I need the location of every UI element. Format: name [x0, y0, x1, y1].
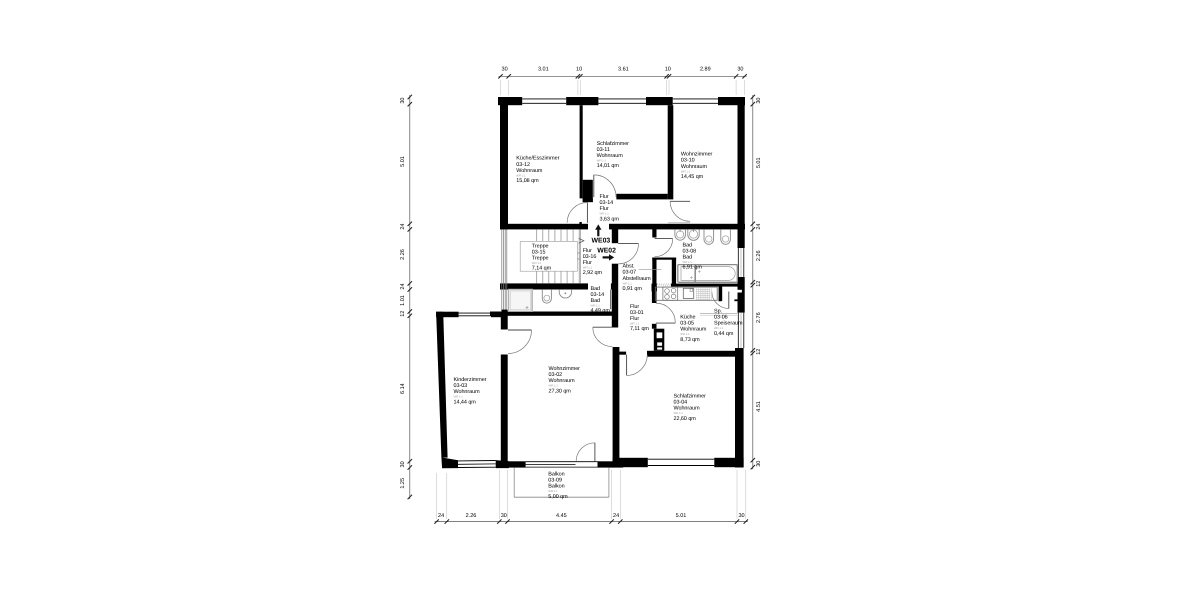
- svg-text:WFl 1:1: WFl 1:1: [549, 385, 559, 388]
- svg-text:30: 30: [756, 98, 762, 104]
- svg-text:24: 24: [613, 513, 619, 519]
- svg-text:4,49 qm: 4,49 qm: [591, 308, 611, 314]
- svg-text:5.01: 5.01: [400, 156, 406, 167]
- svg-text:Wohnzimmer: Wohnzimmer: [681, 152, 713, 158]
- svg-text:12: 12: [400, 311, 406, 317]
- svg-text:Bad: Bad: [683, 242, 693, 248]
- svg-text:Küche: Küche: [680, 315, 695, 321]
- svg-text:3.61: 3.61: [618, 66, 629, 72]
- svg-text:03-10: 03-10: [681, 158, 695, 164]
- svg-text:03-08: 03-08: [683, 249, 697, 255]
- svg-text:Wohnraum: Wohnraum: [681, 164, 708, 170]
- svg-text:WFl 1:1: WFl 1:1: [674, 412, 684, 415]
- svg-text:Schlafzimmer: Schlafzimmer: [597, 141, 630, 147]
- svg-text:Flur: Flur: [583, 260, 592, 266]
- svg-text:03-04: 03-04: [674, 400, 688, 406]
- svg-text:Wohnraum: Wohnraum: [674, 406, 701, 412]
- svg-text:6,91 qm: 6,91 qm: [683, 265, 703, 271]
- svg-text:2.26: 2.26: [756, 250, 762, 261]
- svg-text:WFl 1:1: WFl 1:1: [548, 490, 558, 493]
- svg-text:03-11: 03-11: [597, 147, 610, 153]
- svg-text:5.01: 5.01: [676, 513, 687, 519]
- svg-text:WFl 1:1: WFl 1:1: [597, 160, 607, 163]
- svg-text:WE03: WE03: [592, 237, 611, 244]
- svg-text:14,45 qm: 14,45 qm: [681, 174, 704, 180]
- svg-text:Balkon: Balkon: [548, 472, 564, 478]
- svg-text:10: 10: [665, 66, 671, 72]
- svg-text:30: 30: [502, 66, 508, 72]
- svg-text:30: 30: [738, 513, 744, 519]
- svg-text:Wohnzimmer: Wohnzimmer: [549, 366, 581, 372]
- svg-text:7,14 qm: 7,14 qm: [532, 266, 552, 272]
- svg-text:30: 30: [400, 461, 406, 467]
- svg-text:12: 12: [756, 349, 762, 355]
- svg-text:Kinderzimmer: Kinderzimmer: [454, 377, 487, 383]
- svg-text:22,60 qm: 22,60 qm: [674, 416, 697, 422]
- svg-text:Wohnraum: Wohnraum: [516, 168, 543, 174]
- svg-text:03-15: 03-15: [532, 249, 546, 255]
- svg-text:03-07: 03-07: [623, 270, 637, 276]
- svg-text:03-06: 03-06: [714, 315, 728, 321]
- svg-text:03-03: 03-03: [454, 383, 468, 389]
- svg-text:WE02: WE02: [597, 248, 616, 255]
- svg-text:0,44 qm: 0,44 qm: [714, 331, 734, 337]
- svg-text:24: 24: [400, 224, 406, 230]
- svg-text:WFl 1:1: WFl 1:1: [680, 333, 690, 336]
- svg-text:Treppe: Treppe: [532, 256, 549, 262]
- svg-text:1.25: 1.25: [400, 478, 406, 489]
- svg-text:Wohnraum: Wohnraum: [680, 327, 707, 333]
- svg-text:2.26: 2.26: [466, 513, 477, 519]
- svg-text:WFl 1:1: WFl 1:1: [583, 267, 593, 270]
- svg-text:Abstellraum: Abstellraum: [623, 276, 652, 282]
- svg-text:30: 30: [756, 461, 762, 467]
- svg-text:WFl 1:1: WFl 1:1: [630, 323, 640, 326]
- svg-text:12: 12: [756, 281, 762, 287]
- svg-text:2,92 qm: 2,92 qm: [583, 270, 603, 276]
- svg-text:03-05: 03-05: [680, 321, 694, 327]
- svg-text:Flur: Flur: [630, 304, 639, 310]
- svg-text:WFl 1:1: WFl 1:1: [600, 213, 610, 216]
- svg-text:WFl 1:1: WFl 1:1: [683, 261, 693, 264]
- svg-text:6.14: 6.14: [400, 383, 406, 394]
- svg-text:5,00 qm: 5,00 qm: [548, 494, 568, 500]
- svg-text:3.01: 3.01: [538, 66, 549, 72]
- svg-text:2.89: 2.89: [700, 66, 711, 72]
- svg-text:WFl 1:1: WFl 1:1: [714, 327, 724, 330]
- svg-text:2.26: 2.26: [400, 249, 406, 260]
- svg-text:4.51: 4.51: [756, 401, 762, 412]
- svg-text:Abst.: Abst.: [623, 264, 636, 270]
- svg-text:WFl 1:1: WFl 1:1: [532, 262, 542, 265]
- svg-text:WFl 1:1: WFl 1:1: [623, 282, 633, 285]
- svg-text:5.01: 5.01: [756, 157, 762, 168]
- svg-text:24: 24: [756, 224, 762, 230]
- svg-text:Bad: Bad: [591, 286, 601, 292]
- svg-text:Schlafzimmer: Schlafzimmer: [674, 394, 707, 400]
- svg-text:WFl 1:1: WFl 1:1: [454, 396, 464, 399]
- svg-text:14,44 qm: 14,44 qm: [454, 399, 477, 405]
- svg-text:4.45: 4.45: [556, 513, 567, 519]
- svg-text:03-14: 03-14: [600, 200, 614, 206]
- svg-text:WFl 1:1: WFl 1:1: [516, 174, 526, 177]
- svg-text:Bad: Bad: [591, 298, 601, 304]
- svg-text:Speiseraum: Speiseraum: [714, 321, 743, 327]
- svg-text:WFl 1:1: WFl 1:1: [681, 170, 691, 173]
- svg-text:24: 24: [400, 283, 406, 289]
- svg-text:24: 24: [438, 513, 444, 519]
- svg-text:Treppe: Treppe: [532, 243, 549, 249]
- svg-text:Wohnraum: Wohnraum: [597, 153, 624, 159]
- svg-text:10: 10: [576, 66, 582, 72]
- svg-text:Küche/Esszimmer: Küche/Esszimmer: [516, 156, 559, 162]
- svg-text:Flur: Flur: [600, 194, 609, 200]
- svg-text:03-02: 03-02: [549, 372, 563, 378]
- svg-text:30: 30: [501, 513, 507, 519]
- svg-text:30: 30: [737, 66, 743, 72]
- svg-text:3,63 qm: 3,63 qm: [600, 216, 620, 222]
- svg-text:03-14: 03-14: [591, 292, 605, 298]
- svg-text:0,91 qm: 0,91 qm: [623, 286, 643, 292]
- svg-text:14,01 qm: 14,01 qm: [597, 163, 620, 169]
- svg-text:Sp.: Sp.: [714, 309, 723, 315]
- svg-text:1.01: 1.01: [400, 295, 406, 306]
- svg-text:Flur: Flur: [600, 206, 609, 212]
- svg-text:Balkon: Balkon: [548, 484, 564, 490]
- svg-text:Bad: Bad: [683, 255, 693, 261]
- svg-text:2.76: 2.76: [756, 312, 762, 323]
- svg-text:27,30 qm: 27,30 qm: [549, 388, 572, 394]
- svg-text:Wohnraum: Wohnraum: [549, 378, 576, 384]
- svg-text:03-16: 03-16: [583, 254, 597, 260]
- svg-text:WFl 1:1: WFl 1:1: [591, 305, 601, 308]
- svg-text:Wohnraum: Wohnraum: [454, 389, 481, 395]
- svg-text:03-09: 03-09: [548, 478, 562, 484]
- svg-text:15,08 qm: 15,08 qm: [516, 178, 539, 184]
- svg-text:7,11 qm: 7,11 qm: [630, 326, 649, 332]
- svg-text:8,73 qm: 8,73 qm: [680, 337, 700, 343]
- svg-text:Flur: Flur: [630, 316, 639, 322]
- svg-text:03-01: 03-01: [630, 310, 644, 316]
- svg-text:03-12: 03-12: [516, 162, 530, 168]
- svg-text:30: 30: [400, 98, 406, 104]
- svg-text:Flur: Flur: [583, 248, 592, 254]
